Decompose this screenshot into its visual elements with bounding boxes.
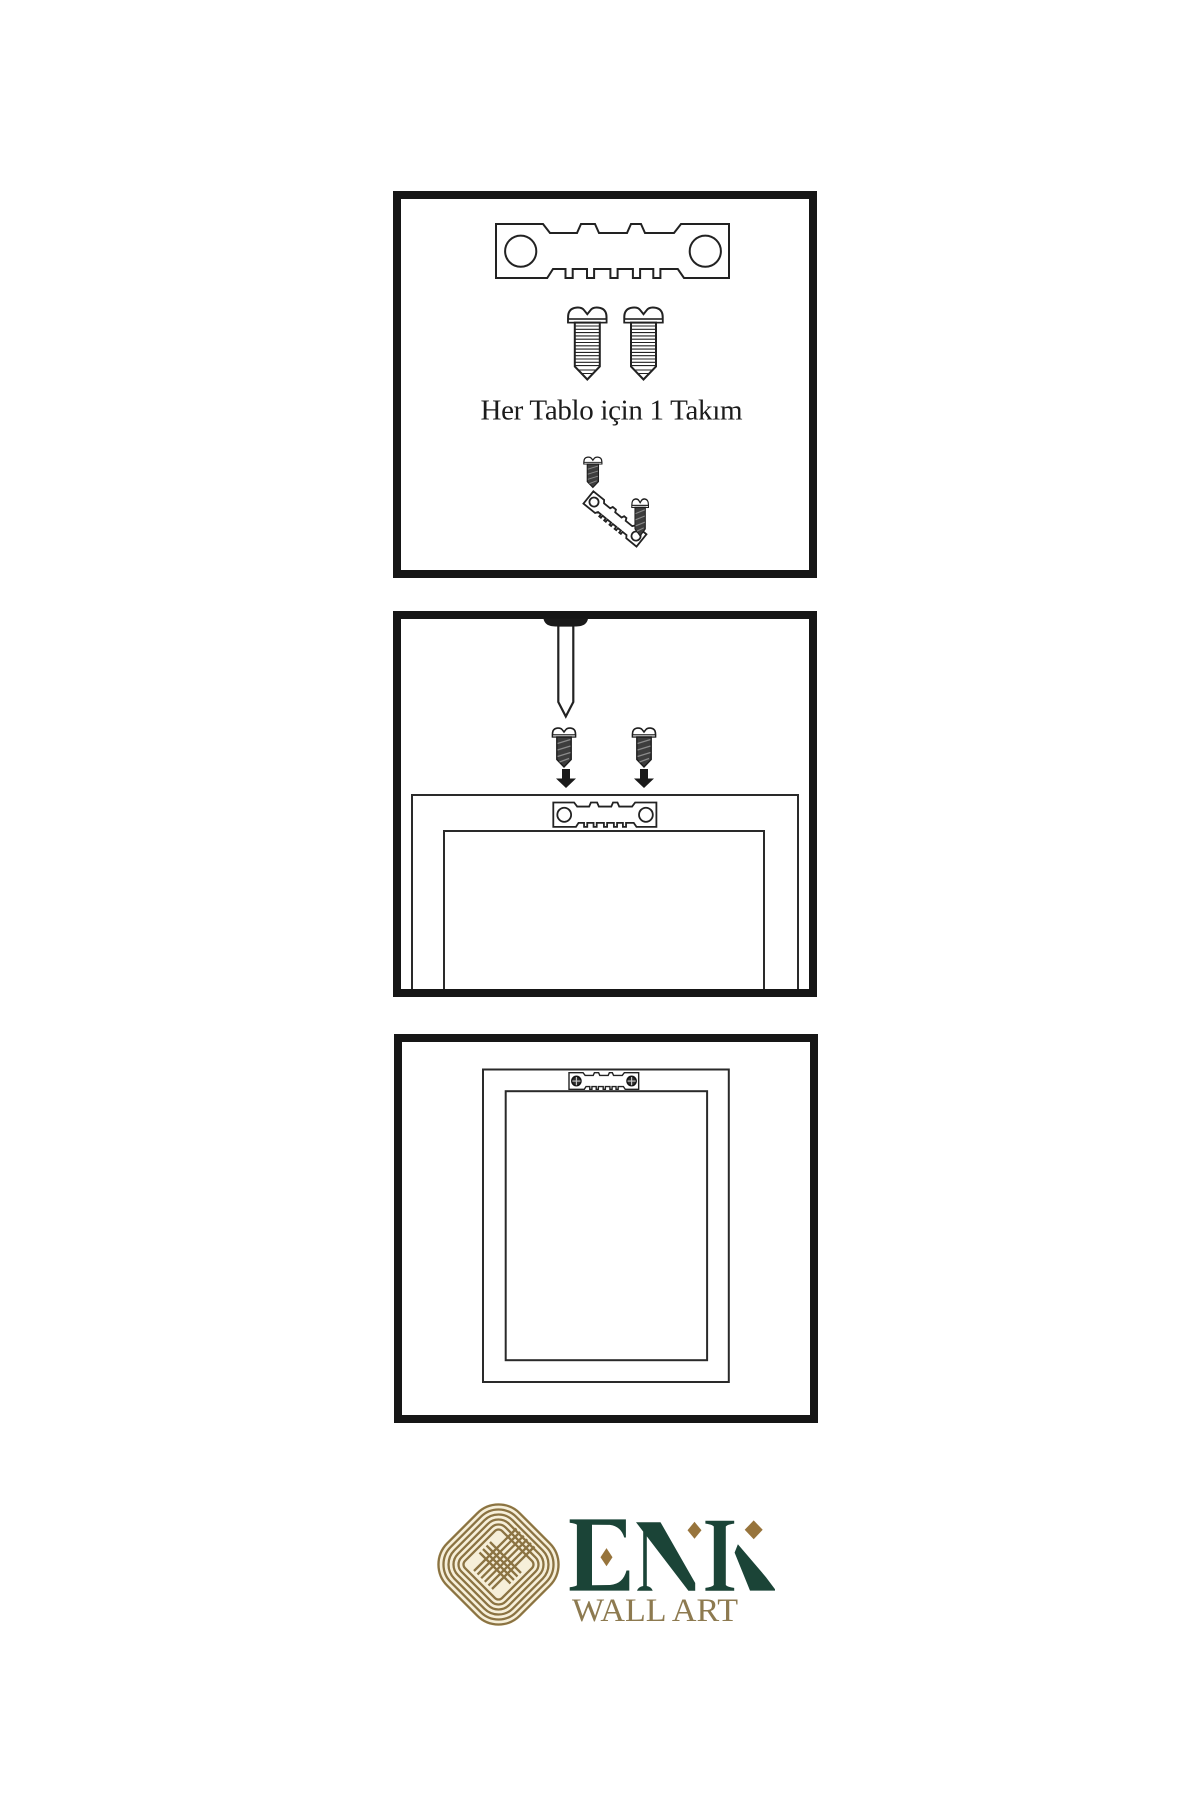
svg-text:WALL ART: WALL ART bbox=[572, 1593, 738, 1629]
svg-text:Her Tablo için 1 Takım: Her Tablo için 1 Takım bbox=[481, 395, 743, 427]
